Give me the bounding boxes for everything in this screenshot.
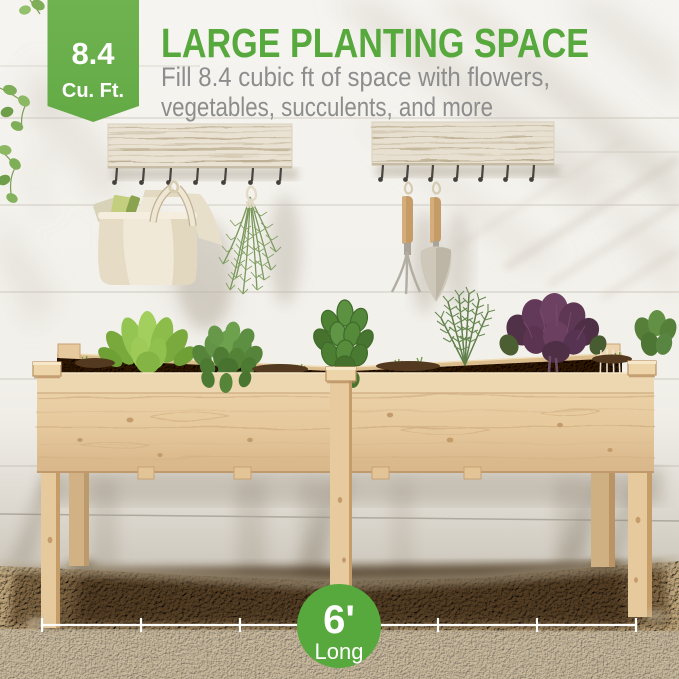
svg-text:8.4: 8.4 bbox=[71, 36, 115, 71]
svg-text:LARGE PLANTING SPACE: LARGE PLANTING SPACE bbox=[161, 20, 589, 66]
svg-text:Long: Long bbox=[315, 639, 364, 664]
svg-text:Cu. Ft.: Cu. Ft. bbox=[62, 80, 124, 102]
svg-text:Fill 8.4 cubic ft of space wit: Fill 8.4 cubic ft of space with flowers, bbox=[161, 62, 550, 92]
svg-text:6': 6' bbox=[323, 598, 355, 642]
svg-text:vegetables, succulents, and mo: vegetables, succulents, and more bbox=[161, 92, 493, 122]
